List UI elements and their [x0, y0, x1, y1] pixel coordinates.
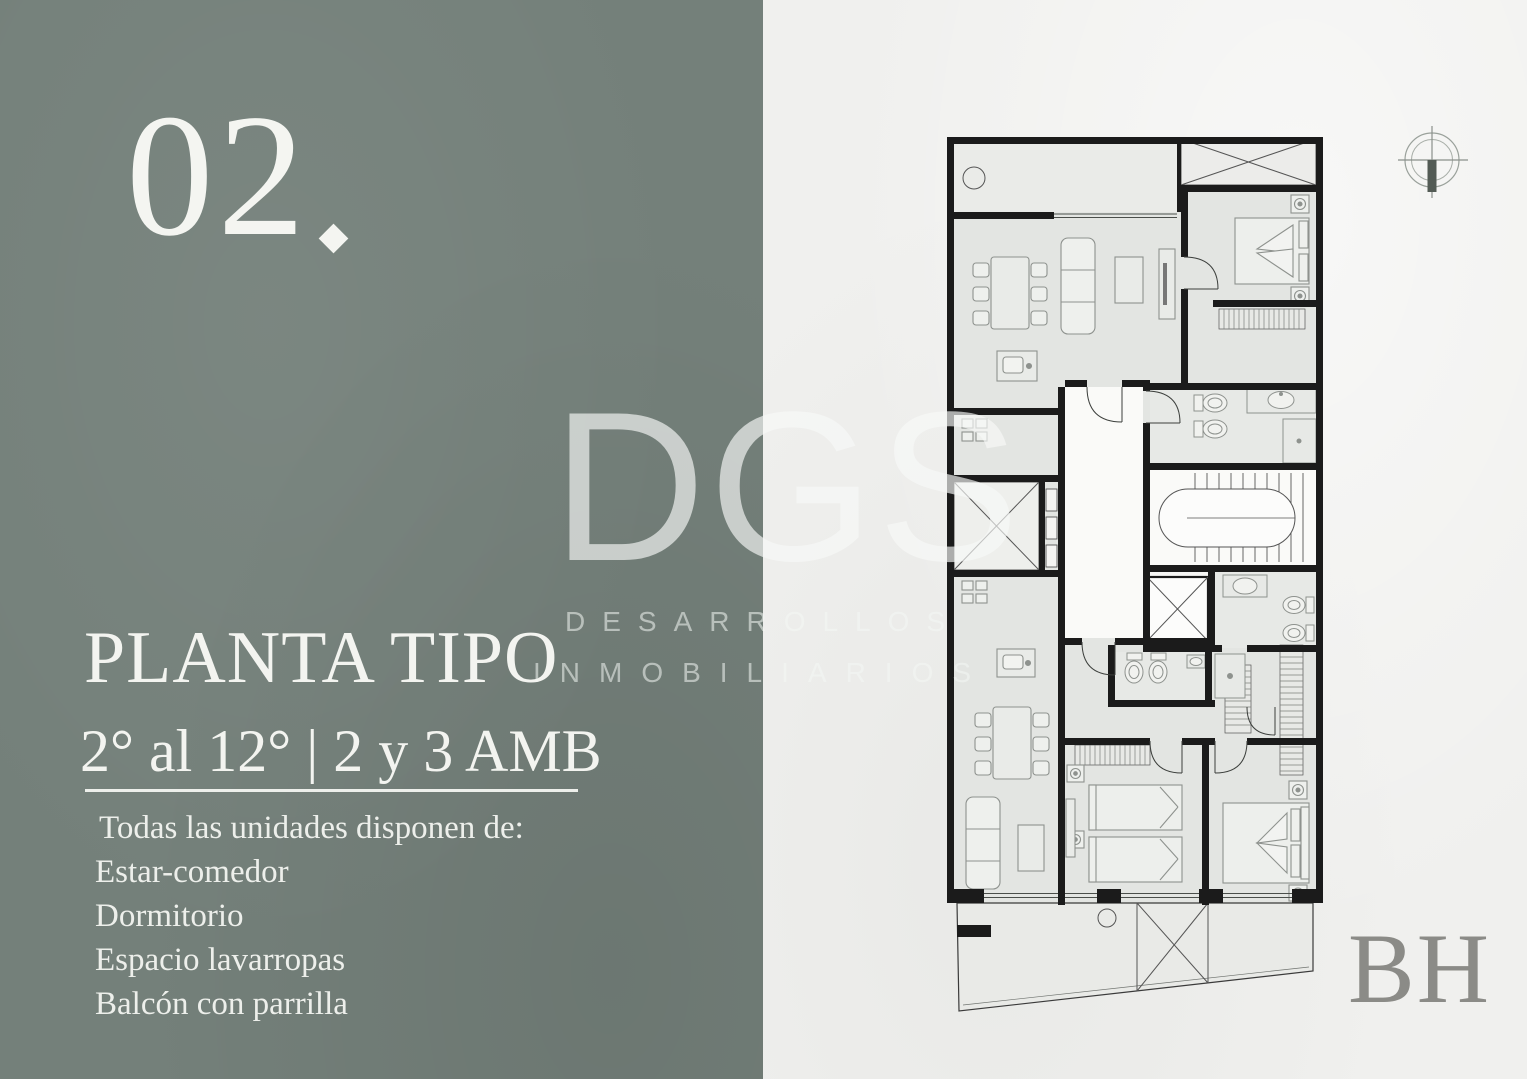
feature-item: Estar-comedor: [95, 850, 524, 894]
feature-item: Dormitorio: [95, 894, 524, 938]
feature-item: Balcón con parrilla: [95, 982, 524, 1026]
left-panel: 02. PLANTA TIPO 2° al 12° | 2 y 3 AMB To…: [0, 0, 763, 1079]
brand-logo: BH: [1348, 919, 1491, 1019]
page-number-text: 02: [126, 78, 309, 272]
elevator-x: [1147, 577, 1208, 641]
features-block: Todas las unidades disponen de: Estar-co…: [95, 806, 524, 1026]
north-compass-icon: [1386, 114, 1478, 206]
page-title: PLANTA TIPO: [84, 620, 558, 698]
diamond-dot: .: [319, 224, 349, 254]
feature-item: Espacio lavarropas: [95, 938, 524, 982]
divider-line: [85, 789, 578, 792]
features-intro: Todas las unidades disponen de:: [99, 806, 524, 850]
page-subtitle: 2° al 12° | 2 y 3 AMB: [80, 720, 602, 783]
page-number: 02.: [126, 88, 344, 263]
floor-plan-drawing: [947, 137, 1323, 1015]
